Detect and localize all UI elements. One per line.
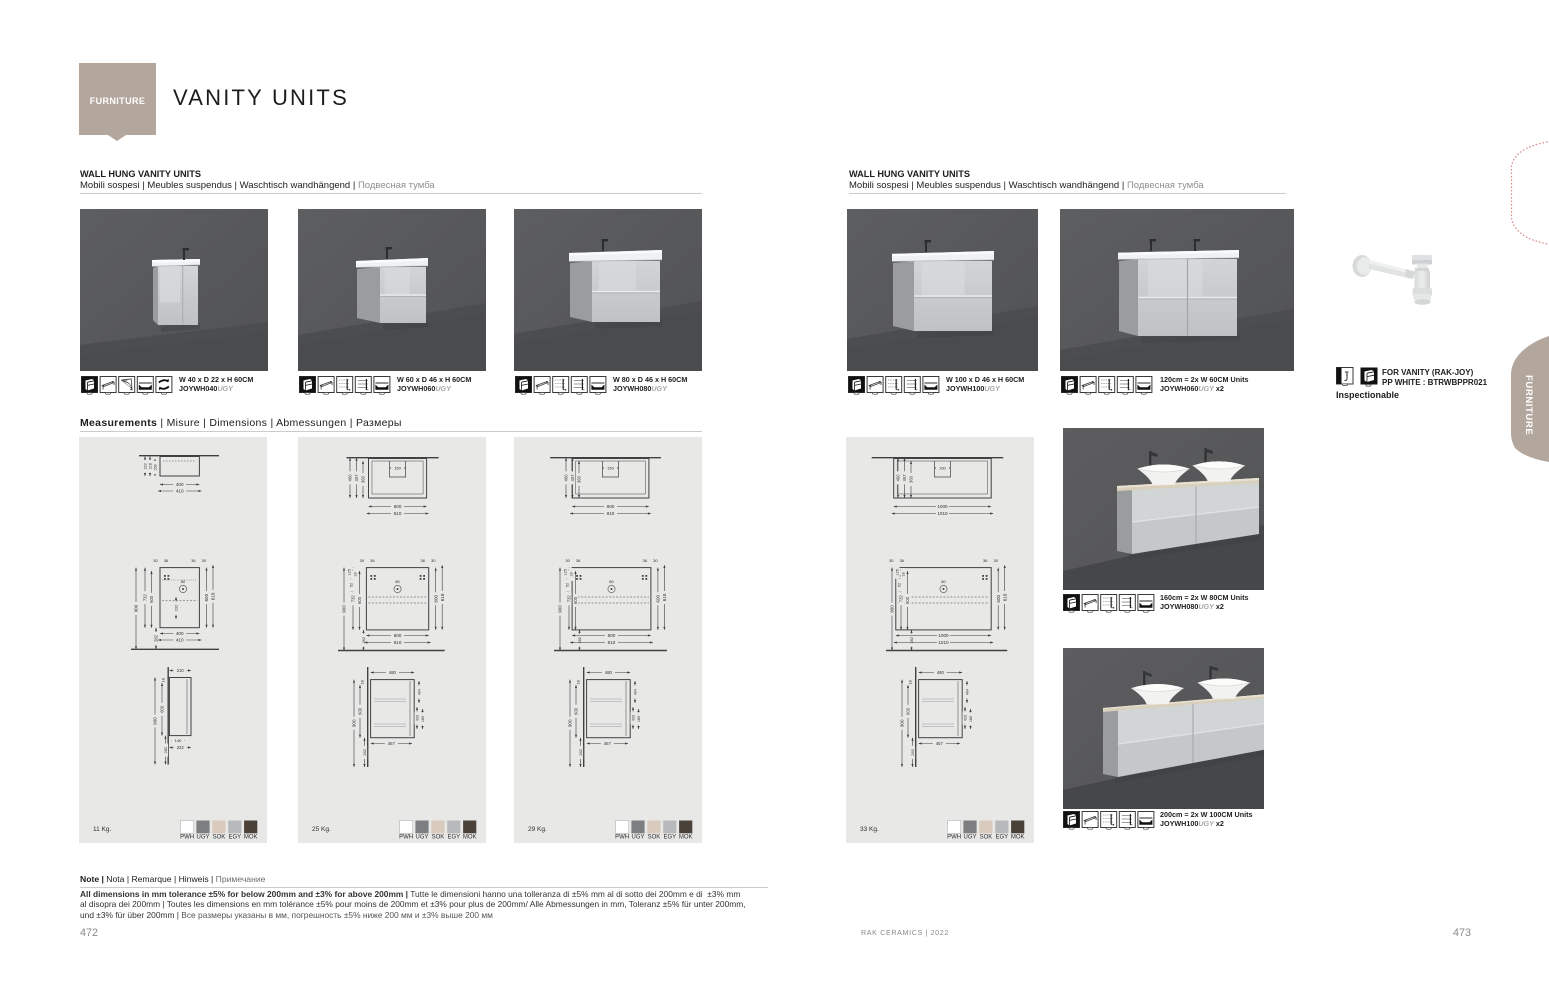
svg-text:11 Kg.: 11 Kg. — [93, 826, 112, 833]
svg-text:30: 30 — [565, 558, 570, 563]
svg-text:618: 618 — [440, 593, 445, 601]
svg-text:EGY: EGY — [663, 835, 676, 841]
svg-text:282: 282 — [153, 634, 158, 642]
svg-text:420: 420 — [964, 715, 968, 721]
svg-text:600: 600 — [357, 596, 362, 604]
svg-text:360: 360 — [361, 475, 366, 483]
svg-text:FURNITURE: FURNITURE — [1523, 375, 1534, 435]
svg-text:457: 457 — [570, 474, 575, 482]
svg-text:900: 900 — [568, 719, 573, 727]
svg-text:404: 404 — [966, 689, 970, 695]
svg-text:18: 18 — [160, 677, 165, 682]
svg-text:1010: 1010 — [938, 640, 949, 645]
svg-text:180: 180 — [637, 716, 641, 722]
svg-text:618: 618 — [1002, 593, 1007, 601]
svg-text:600: 600 — [159, 705, 164, 713]
svg-text:52: 52 — [566, 583, 570, 587]
svg-text:125: 125 — [564, 569, 568, 575]
svg-text:457: 457 — [604, 741, 612, 746]
svg-text:600: 600 — [574, 707, 579, 715]
svg-text:PWH: PWH — [947, 835, 961, 841]
svg-text:900: 900 — [352, 719, 357, 727]
svg-text:36: 36 — [370, 558, 375, 563]
svg-text:618: 618 — [662, 593, 667, 601]
svg-text:460: 460 — [564, 474, 569, 482]
svg-text:900: 900 — [890, 605, 895, 613]
svg-text:18: 18 — [570, 572, 574, 576]
svg-text:222: 222 — [176, 745, 184, 750]
svg-text:158: 158 — [153, 464, 157, 470]
svg-text:30: 30 — [360, 558, 365, 563]
svg-text:800: 800 — [607, 504, 615, 509]
svg-text:210: 210 — [176, 668, 184, 673]
svg-text:180: 180 — [969, 716, 973, 722]
svg-text:30: 30 — [153, 558, 158, 563]
svg-text:150: 150 — [394, 466, 401, 471]
svg-text:460: 460 — [389, 670, 397, 675]
svg-text:732: 732 — [567, 595, 572, 603]
svg-text:360: 360 — [577, 475, 582, 483]
svg-text:460: 460 — [896, 474, 901, 482]
svg-text:MOK: MOK — [1011, 835, 1025, 841]
svg-text:410: 410 — [175, 638, 183, 643]
svg-text:36: 36 — [191, 558, 196, 563]
svg-text:29 Kg.: 29 Kg. — [528, 826, 547, 833]
svg-text:600: 600 — [204, 593, 209, 601]
svg-text:400: 400 — [175, 631, 183, 636]
svg-text:600: 600 — [656, 594, 661, 602]
svg-text:18: 18 — [908, 679, 913, 684]
svg-text:282: 282 — [910, 748, 915, 755]
svg-text:420: 420 — [416, 715, 420, 721]
svg-text:80: 80 — [395, 579, 400, 584]
svg-text:222: 222 — [143, 463, 147, 469]
svg-text:MOK: MOK — [679, 835, 693, 841]
svg-text:80: 80 — [609, 579, 614, 584]
svg-text:404: 404 — [634, 689, 638, 695]
svg-text:80: 80 — [180, 579, 185, 584]
svg-text:33 Kg.: 33 Kg. — [860, 826, 879, 833]
svg-text:600: 600 — [433, 594, 438, 602]
svg-text:SOK: SOK — [432, 835, 445, 841]
svg-text:618: 618 — [210, 592, 215, 600]
svg-text:SOK: SOK — [212, 835, 225, 841]
svg-text:810: 810 — [608, 640, 616, 645]
svg-text:140: 140 — [174, 738, 181, 743]
svg-text:UGY: UGY — [196, 835, 209, 841]
svg-text:150: 150 — [607, 466, 614, 471]
svg-text:400: 400 — [175, 482, 183, 487]
svg-text:30: 30 — [201, 558, 206, 563]
svg-text:900: 900 — [558, 605, 563, 613]
svg-text:900: 900 — [342, 605, 347, 613]
svg-text:125: 125 — [348, 569, 352, 575]
svg-text:125: 125 — [896, 569, 900, 575]
svg-text:18: 18 — [576, 679, 581, 684]
svg-text:900: 900 — [133, 604, 138, 612]
svg-text:25 Kg.: 25 Kg. — [312, 826, 331, 833]
svg-text:SOK: SOK — [980, 835, 993, 841]
svg-text:UGY: UGY — [631, 835, 644, 841]
svg-text:52: 52 — [898, 583, 902, 587]
svg-text:420: 420 — [632, 715, 636, 721]
svg-text:30: 30 — [431, 558, 436, 563]
svg-text:EGY: EGY — [228, 835, 241, 841]
svg-text:610: 610 — [394, 640, 402, 645]
svg-text:36: 36 — [576, 558, 581, 563]
svg-text:PWH: PWH — [615, 835, 629, 841]
svg-text:18: 18 — [354, 572, 358, 576]
svg-text:600: 600 — [906, 707, 911, 715]
svg-text:36: 36 — [643, 558, 648, 563]
svg-text:EGY: EGY — [447, 835, 460, 841]
svg-text:PWH: PWH — [399, 835, 413, 841]
svg-text:MOK: MOK — [463, 835, 477, 841]
svg-text:18: 18 — [360, 679, 365, 684]
svg-text:282: 282 — [578, 748, 583, 755]
svg-text:36: 36 — [420, 558, 425, 563]
svg-text:1000: 1000 — [937, 504, 948, 509]
svg-text:282: 282 — [362, 748, 367, 755]
svg-text:30: 30 — [993, 558, 998, 563]
svg-text:30: 30 — [889, 558, 894, 563]
svg-text:UGY: UGY — [963, 835, 976, 841]
svg-text:36: 36 — [900, 558, 905, 563]
svg-text:218: 218 — [148, 463, 152, 469]
svg-text:52: 52 — [350, 583, 354, 587]
svg-text:800: 800 — [608, 633, 616, 638]
svg-text:900: 900 — [900, 719, 905, 727]
svg-text:150: 150 — [939, 466, 946, 471]
svg-text:600: 600 — [394, 633, 402, 638]
svg-text:30: 30 — [653, 558, 658, 563]
svg-text:360: 360 — [909, 475, 914, 483]
svg-text:600: 600 — [149, 595, 154, 603]
svg-text:600: 600 — [905, 596, 910, 604]
svg-text:900: 900 — [152, 717, 157, 725]
svg-text:EGY: EGY — [995, 835, 1008, 841]
svg-text:MOK: MOK — [243, 835, 257, 841]
svg-text:80: 80 — [941, 579, 946, 584]
svg-text:732: 732 — [899, 595, 904, 603]
svg-text:282: 282 — [163, 746, 168, 753]
svg-text:18: 18 — [902, 572, 906, 576]
svg-text:457: 457 — [936, 741, 944, 746]
svg-text:460: 460 — [937, 670, 945, 675]
svg-text:600: 600 — [358, 707, 363, 715]
svg-text:457: 457 — [388, 741, 396, 746]
svg-text:1010: 1010 — [937, 511, 948, 516]
svg-text:1000: 1000 — [938, 633, 949, 638]
svg-text:600: 600 — [573, 596, 578, 604]
svg-text:732: 732 — [351, 595, 356, 603]
svg-text:410: 410 — [175, 489, 183, 494]
svg-text:UGY: UGY — [415, 835, 428, 841]
svg-text:232: 232 — [173, 604, 178, 611]
svg-text:PWH: PWH — [180, 835, 194, 841]
svg-text:404: 404 — [418, 689, 422, 695]
svg-text:457: 457 — [354, 474, 359, 482]
svg-text:460: 460 — [348, 474, 353, 482]
svg-text:610: 610 — [394, 511, 402, 516]
svg-text:600: 600 — [394, 504, 402, 509]
svg-text:36: 36 — [983, 558, 988, 563]
svg-text:SOK: SOK — [648, 835, 661, 841]
svg-text:460: 460 — [605, 670, 613, 675]
svg-text:732: 732 — [142, 593, 147, 601]
svg-text:180: 180 — [421, 716, 425, 722]
svg-text:810: 810 — [607, 511, 615, 516]
svg-text:36: 36 — [163, 558, 168, 563]
svg-text:600: 600 — [996, 594, 1001, 602]
svg-text:457: 457 — [902, 474, 907, 482]
